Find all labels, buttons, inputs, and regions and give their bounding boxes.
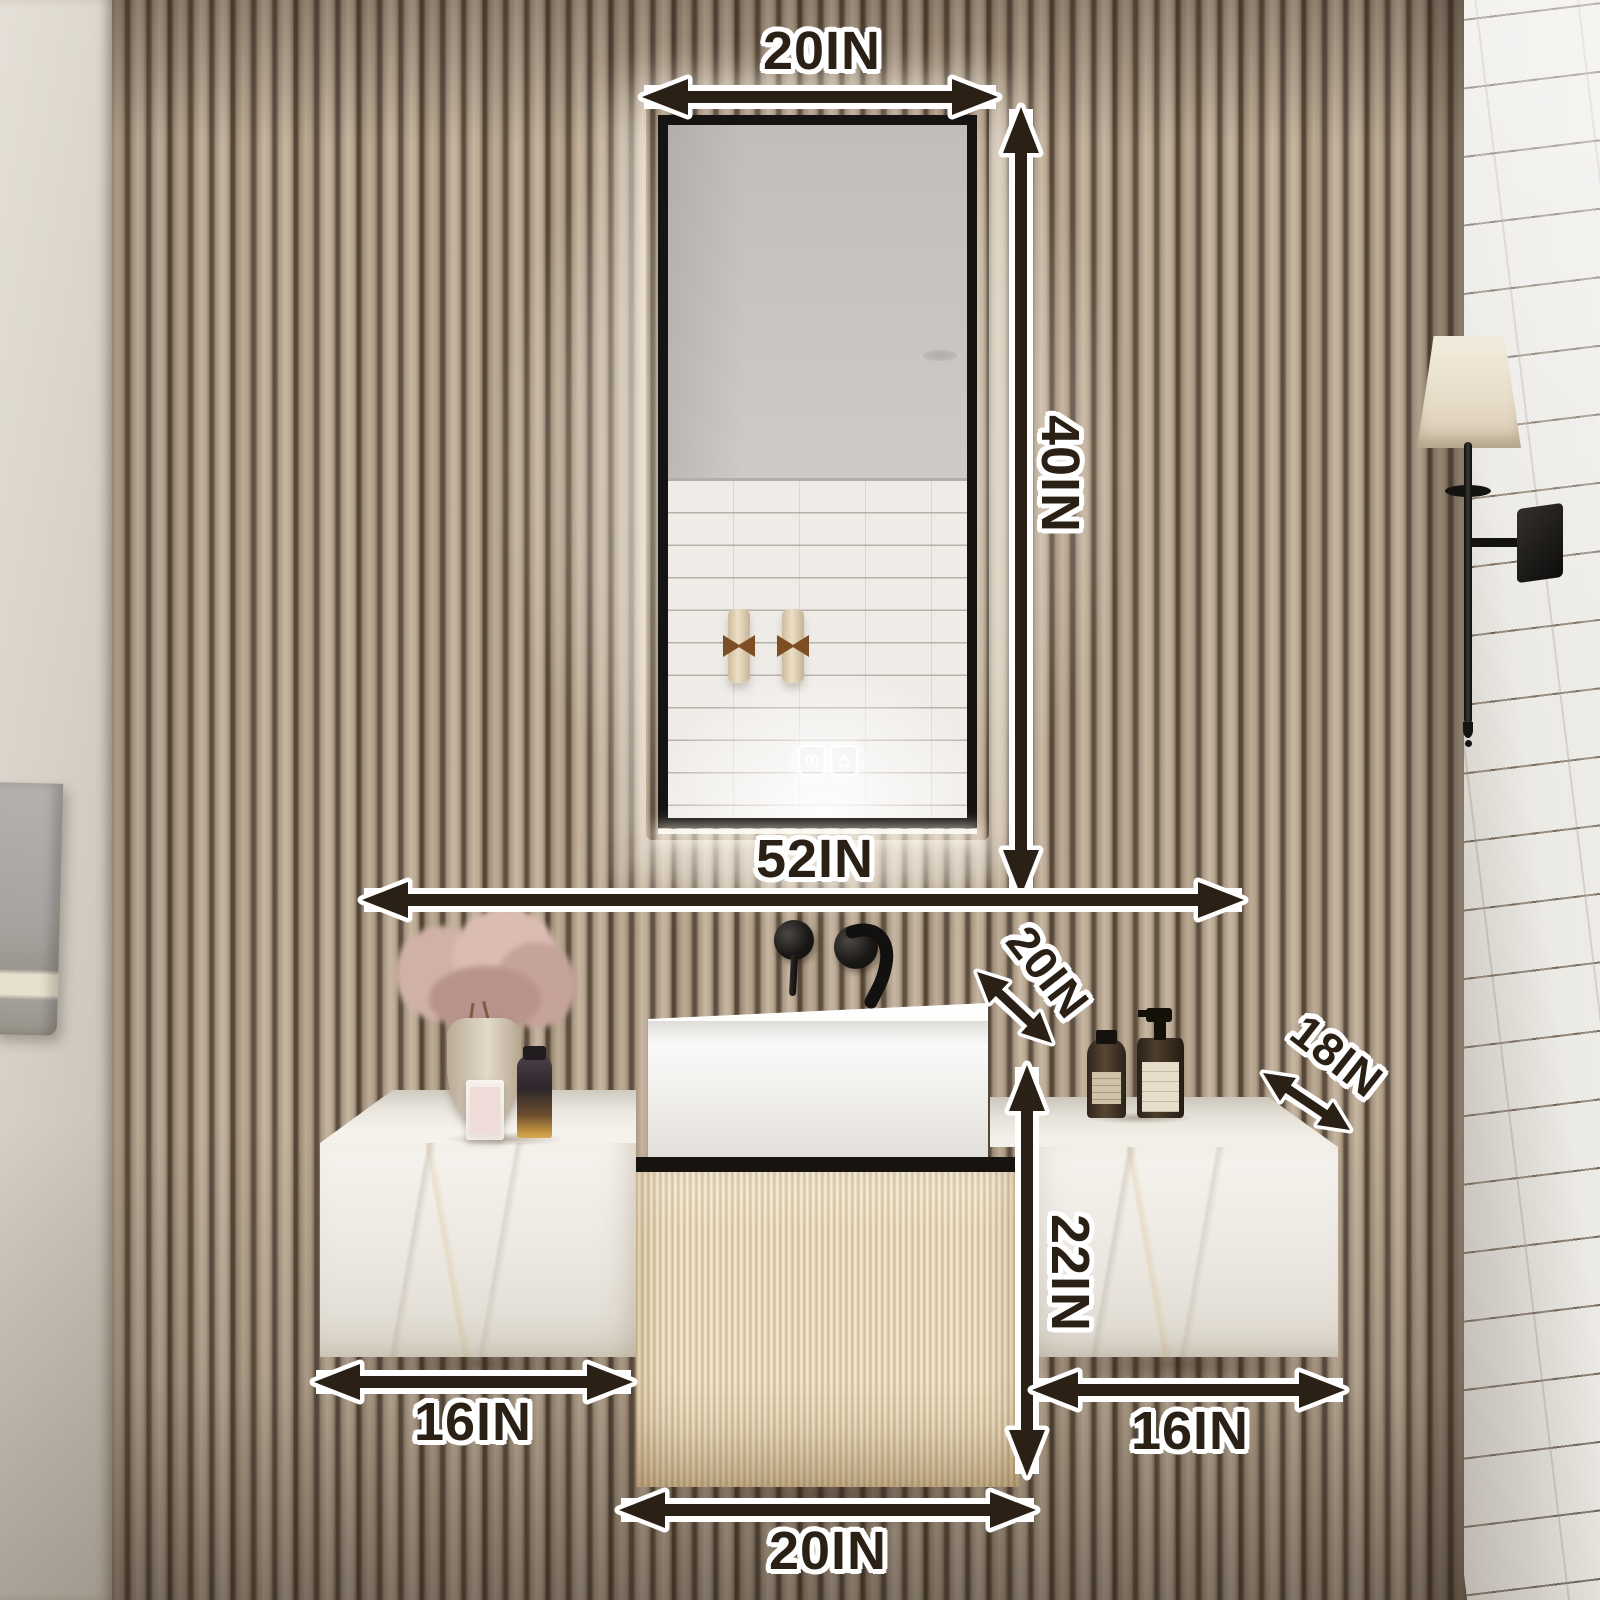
wall-sconce xyxy=(1405,330,1575,760)
sconce-wall-plate xyxy=(1517,503,1563,583)
center-fluted-cabinet xyxy=(636,1172,1020,1487)
dim-label-center-width: 20IN xyxy=(769,1520,887,1582)
amber-bottle-label xyxy=(1092,1072,1121,1104)
defogger-icon xyxy=(798,745,826,776)
mirror-reflection-sconce-bracket xyxy=(723,635,755,657)
soap-pump-spout xyxy=(1138,1010,1150,1017)
dim-label-total-width: 52IN xyxy=(756,828,874,890)
candle-wax xyxy=(470,1087,500,1133)
candle-glass xyxy=(466,1080,504,1140)
mirror-reflection-ceiling-light xyxy=(923,350,957,361)
perfume-cap xyxy=(523,1046,546,1060)
amber-bottle-cap xyxy=(1096,1030,1117,1044)
dim-label-mirror-height: 40IN xyxy=(1029,415,1091,533)
dim-label-vanity-height: 22IN xyxy=(1039,1214,1101,1332)
tile-pattern xyxy=(1464,0,1600,1600)
perfume-bottle xyxy=(517,1056,552,1138)
hanging-towel xyxy=(0,782,63,1036)
corner-shadow xyxy=(1398,0,1468,1600)
sink-rim-shadow xyxy=(648,1021,988,1045)
vessel-sink xyxy=(648,1003,988,1157)
bathroom-vanity-dimension-diagram: 20IN 40IN 52IN 20IN 18IN 22IN 16IN 16IN … xyxy=(0,0,1600,1600)
center-cabinet-black-trim xyxy=(636,1157,1020,1172)
mirror-reflection-sconce-bracket xyxy=(777,635,809,657)
soap-pump-neck xyxy=(1154,1020,1166,1040)
power-icon xyxy=(830,745,858,776)
mirror-reflection-ceiling xyxy=(668,125,967,480)
mirror-reflection-sconce xyxy=(728,609,750,683)
dim-label-mirror-width: 20IN xyxy=(763,20,881,82)
dim-label-left-width: 16IN xyxy=(414,1391,532,1453)
sconce-finial xyxy=(1463,722,1473,738)
dim-label-right-width: 16IN xyxy=(1131,1400,1249,1462)
sconce-finial-ball xyxy=(1465,740,1472,747)
led-mirror xyxy=(658,115,977,828)
sconce-stem xyxy=(1464,442,1472,724)
sconce-shade xyxy=(1417,336,1521,448)
soap-pump-label xyxy=(1142,1062,1179,1112)
faucet-spout xyxy=(826,912,896,1012)
mirror-reflection-sconce xyxy=(782,609,804,683)
left-cabinet xyxy=(320,1143,636,1357)
right-tile-wall xyxy=(1464,0,1600,1600)
